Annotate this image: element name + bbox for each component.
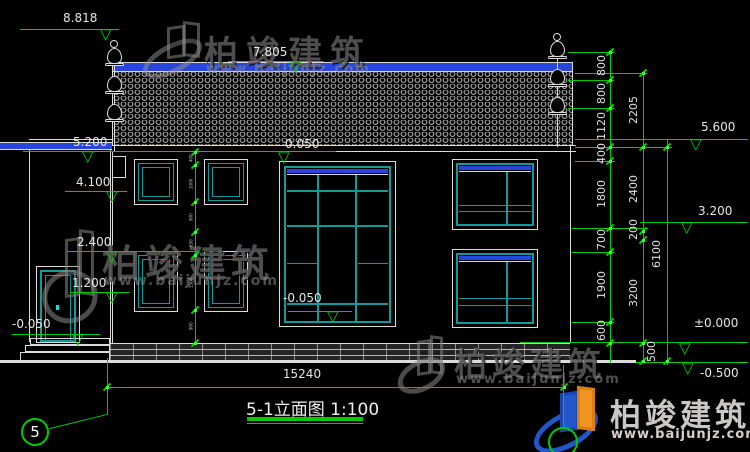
grid-line-right [563,365,564,428]
dim-tick-dot [194,164,197,167]
window-right-lower-frame [456,253,534,324]
level-eaves-right: 5.600 [701,121,735,134]
grid-bubble-5: 5 [21,418,49,446]
dim-tick-dot [609,160,612,163]
dim-label-small: 900 [187,310,195,343]
dim-tick-dot [563,386,566,389]
finial-left-body-1 [107,48,122,64]
logo-tower-orange [577,386,595,431]
level-mid-right: 3.200 [698,205,732,218]
watermark-url-bottom: www.baijunjz.com [456,372,621,387]
level-ground: -0.500 [700,367,739,380]
step-2 [25,345,110,352]
dim-tick-dot [609,146,612,149]
window-right-lower-mullion [506,262,508,323]
dim-label: 1900 [595,250,608,320]
dim-tick-dot [609,79,612,82]
dim-tick-dot [194,151,197,154]
window-upper-mid-sash [212,167,240,197]
window-right-upper-mullion [506,172,508,225]
level-win1-sill-line [70,292,130,293]
dim-tick-dot [642,239,645,242]
dim-tick-dot [106,386,109,389]
dim-chain-inner-line [610,50,611,363]
level-finial-top: 8.818 [63,12,97,25]
dim-label: 600 [595,318,608,344]
roof-tile-pattern [113,72,572,145]
level-entry-bottom: -0.050 [283,292,322,305]
dim-tick-dot [609,51,612,54]
elevation-marker-triangle: ▽ [681,220,693,235]
dim-tick-dot [609,227,612,230]
finial-left-body-2 [107,76,122,92]
dim-chain-mid-line [643,71,644,362]
dim-tick-dot [194,201,197,204]
level-ridge: 7.805 [253,46,287,59]
window-right-lower-lintel [459,256,531,260]
dim-tick-dot [609,251,612,254]
central-rail-2 [287,225,388,227]
window-right-upper-frame [456,163,534,226]
dim-tick-dot [609,342,612,345]
elevation-marker-triangle: ▽ [106,249,118,264]
dim-label: 1120 [595,106,608,147]
level-door-left-line [12,334,100,335]
dim-label: 6100 [650,147,663,361]
title-underline-thick [247,417,363,421]
level-zero: ±0.000 [694,317,738,330]
dim-label: 800 [595,80,608,108]
dim-label: 800 [595,52,608,80]
brand-url-color: www.baijunjz.com [611,427,750,442]
dim-label: 3200 [627,243,640,343]
central-rail-side-left [287,263,317,264]
finial-right-body-3 [550,97,565,113]
total-width-dim-text: 15240 [272,368,332,381]
level-entry-bottom-line [288,311,352,312]
window-right-lower-rail-2 [459,305,531,306]
logo-tower-blue [167,25,185,60]
finial-left-flare-1 [105,63,124,66]
central-glazing-lintel-line [287,174,388,175]
dim-label: 1800 [595,163,608,226]
elevation-marker-triangle: ▽ [106,290,118,305]
elevation-marker-triangle: ▽ [290,59,302,74]
total-width-dim-line [107,387,565,388]
step-1 [30,338,110,345]
dim-tick-dot [642,146,645,149]
dim-label-small: 1500 [187,255,195,310]
level-win1-sill: 1.200 [72,277,106,290]
finial-right-flare-3 [548,112,567,115]
wing-edge-left [29,150,30,342]
watermark-logo-bottom [396,336,454,392]
window-right-upper-rail-2 [459,211,531,212]
dim-tick-dot [666,146,669,149]
roof-edge-right [572,63,573,146]
elevation-marker-triangle: ▽ [106,189,118,204]
dim-tick-dot [194,231,197,234]
level-ridge-line [228,61,323,62]
dim-tick-dot [642,230,645,233]
dim-label: 200 [627,218,640,242]
watermark-logo-top [140,22,214,74]
window-right-lower-rail-1 [459,298,531,299]
wall-edge-right [570,146,571,343]
elevation-marker-triangle: ▽ [690,137,702,152]
cad-elevation-drawing: 柏竣建筑 www.baijunjz.com 柏竣建筑 www.baijunjz.… [0,0,750,452]
finial-right-knob [553,33,561,41]
elevation-marker-triangle: ▽ [72,332,84,347]
elevation-marker-triangle: ▽ [679,341,691,356]
window-right-upper-lintel [459,166,531,170]
elevation-marker-triangle: ▽ [100,27,112,42]
dim-tick-dot [609,321,612,324]
dim-tick-dot [642,72,645,75]
dim-tick-dot [642,342,645,345]
finial-left-body-3 [107,104,122,120]
dim-tick-dot [666,360,669,363]
elevation-marker-triangle: ▽ [82,149,94,164]
watermark-url-top: www.baijunjz.com [206,62,371,77]
level-win1-head-line [67,251,195,252]
elevation-marker-triangle: ▽ [682,361,694,376]
elevation-marker-triangle: ▽ [327,309,339,324]
corbel-detail [112,156,126,178]
finial-right-flare-2 [548,84,567,87]
logo-tower-orange [430,335,443,375]
dim-label-small: 900 [187,202,195,232]
window-right-lower-lintel-line [459,261,531,262]
window-right-upper-lintel-line [459,171,531,172]
dim-tick-dot [194,254,197,257]
finial-right-flare-1 [548,56,567,59]
grid-leader-left [50,414,108,429]
window-upper-left-sash [142,167,170,197]
finial-right-body-2 [550,69,565,85]
dim-tick-dot [642,360,645,363]
central-mullion-right [355,175,357,321]
title-underline-thin [247,423,363,424]
central-rail-1 [287,190,388,192]
finial-left-flare-3 [105,119,124,122]
central-glazing-lintel [287,169,388,173]
dim-tick-dot [194,309,197,312]
grid-bubble-right [548,427,578,452]
logo-tower-orange [183,21,200,58]
dim-tick-dot [609,107,612,110]
level-entry-top: 0.050 [285,138,319,151]
level-door-left: -0.050 [12,318,51,331]
dim-label-small: 1000 [187,165,195,202]
dim-chain-outer-line [667,140,668,365]
dim-label: 2205 [627,73,640,147]
facade-chain-line [195,152,196,343]
central-rail-side-right [358,263,388,264]
window-right-upper-rail-1 [459,205,531,206]
dim-tick-dot [194,342,197,345]
logo-tower-blue [417,339,431,376]
finial-right-body-1 [550,41,565,57]
finial-left-flare-2 [105,91,124,94]
elevation-marker-triangle: ▽ [278,150,290,165]
